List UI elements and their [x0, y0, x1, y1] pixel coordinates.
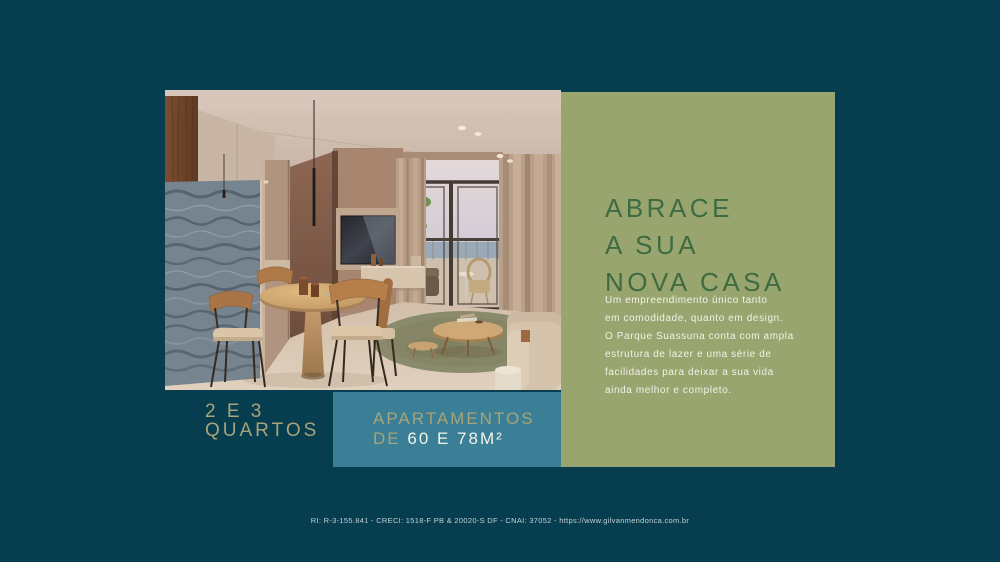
slide: ABRACE A SUA NOVA CASA Um empreendimento… — [0, 0, 1000, 562]
green-panel: ABRACE A SUA NOVA CASA Um empreendimento… — [561, 92, 835, 467]
headline-line-1: ABRACE — [605, 190, 785, 227]
headline: ABRACE A SUA NOVA CASA — [605, 190, 785, 301]
apartments-size-line: DE 60 E 78M² — [373, 429, 535, 449]
apartments-size-prefix: DE — [373, 429, 401, 448]
description-text: Um empreendimento único tanto em comodid… — [605, 292, 820, 400]
bedrooms-label: 2 E 3 QUARTOS — [205, 402, 319, 440]
apartments-line-1: APARTAMENTOS — [373, 409, 535, 429]
bedrooms-line-2: QUARTOS — [205, 421, 319, 440]
bedrooms-line-1: 2 E 3 — [205, 402, 319, 421]
legal-footer: RI: R-3-155.841 - CRECI: 1518-F PB & 200… — [0, 516, 1000, 525]
apartments-badge: APARTAMENTOS DE 60 E 78M² — [333, 392, 561, 467]
apartments-badge-text: APARTAMENTOS DE 60 E 78M² — [373, 409, 535, 449]
apartment-photo-illustration — [165, 90, 561, 390]
apartments-size-value: 60 E 78M² — [407, 429, 503, 448]
headline-line-2: A SUA — [605, 227, 785, 264]
stone-feature-wall — [165, 178, 262, 390]
apartment-photo — [165, 90, 561, 390]
